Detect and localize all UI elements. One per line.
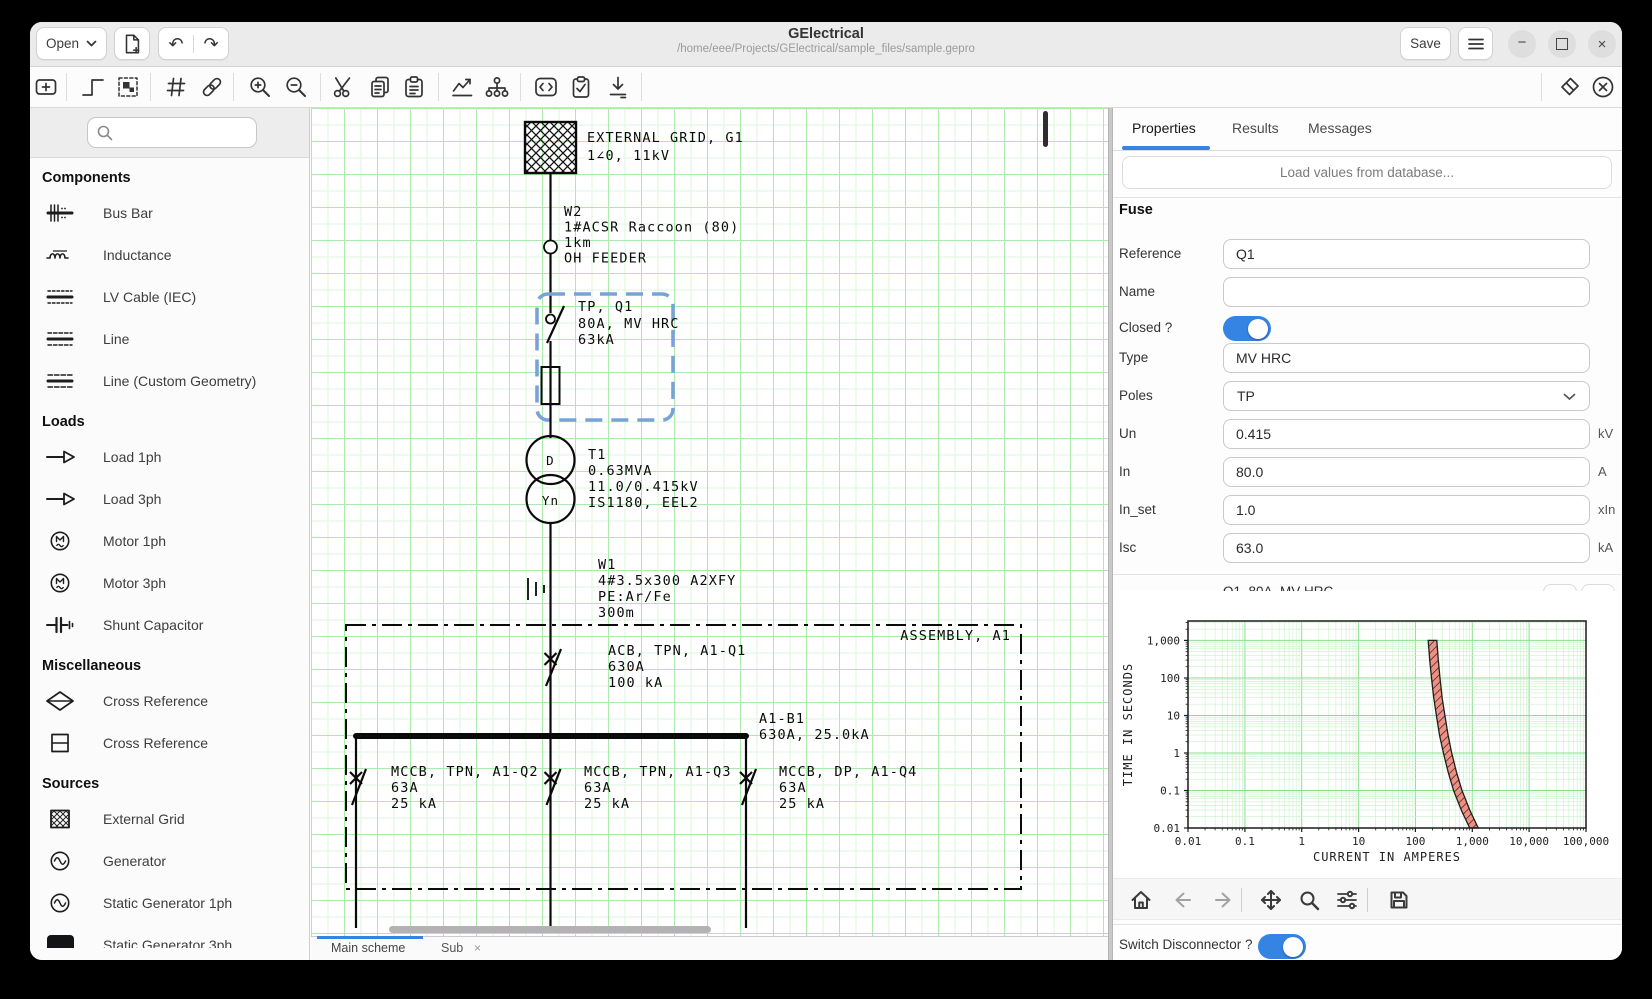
menu-button[interactable] — [1458, 27, 1493, 60]
floppy-save-icon — [1387, 888, 1411, 912]
maximize-button[interactable] — [1548, 30, 1576, 58]
svg-text:IS1180, EEL2: IS1180, EEL2 — [588, 495, 699, 511]
svg-text:100: 100 — [1405, 835, 1425, 848]
tab-results[interactable]: Results — [1232, 120, 1279, 136]
in-set-input[interactable] — [1223, 495, 1590, 525]
sidebar-item-static-generator-3ph[interactable]: Static Generator 3ph — [30, 924, 309, 948]
draw-wire-icon — [80, 74, 106, 100]
paste-button[interactable] — [401, 74, 427, 100]
w2-label: W2 — [564, 204, 582, 220]
new-document-icon — [121, 32, 143, 56]
link-icon — [199, 74, 225, 100]
external-grid-symbol[interactable] — [525, 122, 576, 173]
sidebar-item-motor-3ph[interactable]: Motor 3ph — [30, 562, 309, 604]
section-miscellaneous: Miscellaneous — [30, 646, 309, 680]
mccb-q2-label: MCCB, TPN, A1-Q2 — [391, 764, 539, 780]
component-list: Components Bus Bar Inductance LV Cable (… — [30, 158, 309, 948]
svg-text:0.1: 0.1 — [1160, 785, 1180, 798]
add-component-icon — [33, 74, 59, 100]
svg-text:1,000: 1,000 — [1456, 835, 1489, 848]
schematic-drawing[interactable]: EXTERNAL GRID, G1 1∠0, 11kV W2 1#ACSR Ra… — [311, 108, 1108, 936]
svg-text:25 kA: 25 kA — [779, 796, 825, 812]
chart-zoom-button[interactable] — [1297, 888, 1321, 912]
load-arrow-icon — [45, 446, 77, 468]
sidebar-item-label: Static Generator 3ph — [103, 937, 232, 948]
import-values-button[interactable] — [605, 74, 631, 100]
mccb-q4-label: MCCB, DP, A1-Q4 — [779, 764, 917, 780]
svg-text:OH FEEDER: OH FEEDER — [564, 251, 647, 267]
titlebar: Open ↶ ↷ GElectrical /home/eee/Projects/… — [30, 22, 1622, 67]
motor-icon — [45, 530, 77, 552]
svg-text:63A: 63A — [779, 780, 807, 796]
inductance-icon — [45, 244, 77, 266]
edit-code-button[interactable] — [533, 74, 559, 100]
sidebar-item-label: Static Generator 1ph — [103, 895, 232, 911]
paste-icon — [401, 74, 427, 100]
home-icon — [1129, 888, 1153, 912]
chevron-down-icon — [1563, 393, 1576, 401]
new-document-button[interactable] — [114, 27, 150, 60]
chart-back-button[interactable] — [1171, 888, 1195, 912]
svg-text:1∠0, 11kV: 1∠0, 11kV — [587, 148, 670, 164]
clipboard-check-icon — [568, 74, 594, 100]
chart-save-button[interactable] — [1387, 888, 1411, 912]
line-custom-icon — [45, 370, 77, 392]
svg-text:0.63MVA: 0.63MVA — [588, 463, 653, 479]
line-icon — [45, 328, 77, 350]
download-icon — [605, 74, 631, 100]
minimize-icon: − — [1518, 34, 1527, 51]
link-elements-button[interactable] — [199, 74, 225, 100]
name-input[interactable] — [1223, 277, 1590, 307]
sidebar-item-cross-reference-1[interactable]: Cross Reference — [30, 680, 309, 722]
section-loads: Loads — [30, 402, 309, 436]
close-button[interactable]: × — [1588, 30, 1616, 58]
component-sidebar: Components Bus Bar Inductance LV Cable (… — [30, 108, 310, 960]
eraser-button[interactable] — [1555, 74, 1581, 100]
eraser-icon — [1555, 74, 1581, 100]
acb-label: ACB, TPN, A1-Q1 — [608, 643, 746, 659]
insert-assembly-button[interactable] — [115, 74, 141, 100]
sidebar-item-label: External Grid — [103, 811, 185, 827]
search-icon — [96, 124, 114, 142]
window-title-block: GElectrical /home/eee/Projects/GElectric… — [526, 26, 1126, 55]
svg-text:10: 10 — [1167, 710, 1180, 723]
vertical-scrollbar-thumb[interactable] — [1043, 111, 1048, 147]
app-title: GElectrical — [526, 26, 1126, 42]
poles-selected-value: TP — [1237, 388, 1255, 404]
svg-text:TIME IN SECONDS: TIME IN SECONDS — [1121, 663, 1135, 786]
sidebar-item-label: Cross Reference — [103, 735, 208, 751]
field-label-un: Un — [1119, 426, 1136, 441]
cable-icon — [45, 286, 77, 308]
add-component-button[interactable] — [33, 74, 59, 100]
sidebar-item-label: Bus Bar — [103, 205, 153, 221]
sidebar-item-label: Shunt Capacitor — [103, 617, 203, 633]
sidebar-item-load-3ph[interactable]: Load 3ph — [30, 478, 309, 520]
network-model-button[interactable] — [484, 74, 510, 100]
sidebar-item-external-grid[interactable]: External Grid — [30, 798, 309, 840]
chart-pan-button[interactable] — [1259, 888, 1283, 912]
sidebar-item-line[interactable]: Line — [30, 318, 309, 360]
sidebar-item-line-custom[interactable]: Line (Custom Geometry) — [30, 360, 309, 402]
static-generator-icon — [45, 934, 77, 948]
sidebar-item-cross-reference-2[interactable]: Cross Reference — [30, 722, 309, 764]
tab-sub[interactable]: Sub — [441, 941, 463, 955]
switch-disconnector-toggle[interactable] — [1258, 934, 1306, 959]
circle-x-icon — [1590, 74, 1616, 100]
hash-icon — [163, 74, 189, 100]
element-type-heading: Fuse — [1119, 202, 1153, 218]
svg-text:300m: 300m — [598, 605, 635, 621]
generator-icon — [45, 892, 77, 914]
horizontal-scrollbar-thumb[interactable] — [389, 926, 711, 933]
toolbar — [30, 67, 1622, 108]
chart-toolbar — [1113, 878, 1622, 920]
move-icon — [1259, 888, 1283, 912]
un-unit: kV — [1598, 426, 1613, 441]
svg-text:1#ACSR Raccoon (80): 1#ACSR Raccoon (80) — [564, 220, 739, 236]
tab-messages[interactable]: Messages — [1308, 120, 1372, 136]
sidebar-item-label: Load 3ph — [103, 491, 161, 507]
active-sheet-indicator — [317, 936, 423, 939]
arrow-right-icon — [1211, 888, 1235, 912]
vector-group-lv: Yn — [542, 493, 559, 508]
svg-text:1km: 1km — [564, 235, 592, 251]
redo-button[interactable]: ↷ — [194, 35, 228, 53]
external-grid-label: EXTERNAL GRID, G1 — [587, 130, 744, 146]
svg-text:CURRENT IN AMPERES: CURRENT IN AMPERES — [1313, 850, 1461, 864]
switch-disconnector-label: Switch Disconnector ? — [1119, 937, 1253, 952]
poles-select[interactable]: TP — [1223, 381, 1590, 411]
field-label-closed: Closed ? — [1119, 320, 1172, 335]
type-input[interactable] — [1223, 343, 1590, 373]
svg-text:630A: 630A — [608, 659, 645, 675]
svg-text:80A, MV HRC: 80A, MV HRC — [578, 316, 680, 332]
zoom-in-icon — [247, 74, 273, 100]
line-chart-icon — [449, 74, 475, 100]
assembly-label: ASSEMBLY, A1 — [900, 628, 1011, 644]
save-button-label: Save — [1410, 36, 1441, 51]
section-sources: Sources — [30, 764, 309, 798]
svg-text:1,000: 1,000 — [1147, 634, 1180, 647]
reference-input[interactable] — [1223, 239, 1590, 269]
in-input[interactable] — [1223, 457, 1590, 487]
un-input[interactable] — [1223, 419, 1590, 449]
cross-reference-diamond-icon — [45, 690, 77, 712]
sidebar-item-label: Generator — [103, 853, 166, 869]
sidebar-item-bus-bar[interactable]: Bus Bar — [30, 192, 309, 234]
close-icon: × — [1598, 36, 1607, 53]
w1-label: W1 — [598, 557, 616, 573]
maximize-icon — [1556, 38, 1568, 50]
open-button-label: Open — [46, 36, 79, 51]
zoom-in-button[interactable] — [247, 74, 273, 100]
field-label-in: In — [1119, 464, 1130, 479]
transformer-label: T1 — [588, 447, 606, 463]
cut-icon — [330, 74, 356, 100]
svg-text:11.0/0.415kV: 11.0/0.415kV — [588, 479, 699, 495]
sidebar-item-generator[interactable]: Generator — [30, 840, 309, 882]
sidebar-item-label: Line — [103, 331, 129, 347]
file-path: /home/eee/Projects/GElectrical/sample_fi… — [526, 43, 1126, 55]
chart-settings-button[interactable] — [1335, 888, 1359, 912]
svg-text:0.01: 0.01 — [1175, 835, 1202, 848]
sidebar-item-static-generator-1ph[interactable]: Static Generator 1ph — [30, 882, 309, 924]
load-from-database-button[interactable]: Load values from database... — [1122, 156, 1612, 189]
code-icon — [533, 74, 559, 100]
magnifier-icon — [1297, 888, 1321, 912]
svg-text:63A: 63A — [391, 780, 419, 796]
properties-panel: Properties Results Messages Load values … — [1113, 108, 1622, 960]
load-arrow-icon — [45, 488, 77, 510]
arrow-left-icon — [1171, 888, 1195, 912]
field-label-name: Name — [1119, 284, 1155, 299]
tab-sub-close-icon[interactable]: × — [474, 941, 481, 955]
zoom-out-icon — [283, 74, 309, 100]
hamburger-menu-icon — [1468, 38, 1484, 50]
fuse-switch-node[interactable] — [546, 315, 555, 324]
sheet-tabbar: Main scheme Sub × — [311, 936, 1108, 960]
panel-tabs: Properties Results Messages — [1113, 108, 1622, 151]
svg-text:10: 10 — [1352, 835, 1365, 848]
save-button[interactable]: Save — [1400, 27, 1451, 60]
chevron-down-icon — [86, 40, 97, 47]
insert-assembly-icon — [115, 74, 141, 100]
run-analysis-button[interactable] — [449, 74, 475, 100]
svg-text:100,000: 100,000 — [1563, 835, 1609, 848]
active-tab-indicator — [1122, 146, 1210, 150]
search-box[interactable] — [87, 117, 257, 148]
vector-group-hv: D — [546, 453, 555, 468]
section-components: Components — [30, 158, 309, 192]
svg-text:100 kA: 100 kA — [608, 675, 663, 691]
zoom-out-button[interactable] — [283, 74, 309, 100]
sidebar-item-label: Load 1ph — [103, 449, 161, 465]
svg-text:25 kA: 25 kA — [584, 796, 630, 812]
chart-home-button[interactable] — [1129, 888, 1153, 912]
app-window: Open ↶ ↷ GElectrical /home/eee/Projects/… — [30, 22, 1622, 960]
w2-node[interactable] — [544, 241, 557, 254]
in-set-unit: xIn — [1598, 502, 1615, 517]
svg-text:0.01: 0.01 — [1154, 822, 1181, 835]
isc-input[interactable] — [1223, 533, 1590, 563]
redo-icon: ↷ — [203, 34, 218, 54]
closed-toggle[interactable] — [1223, 316, 1271, 341]
element-reference-button[interactable] — [163, 74, 189, 100]
in-unit: A — [1598, 464, 1607, 479]
svg-text:63A: 63A — [584, 780, 612, 796]
svg-text:10,000: 10,000 — [1509, 835, 1549, 848]
shunt-capacitor-icon — [45, 614, 77, 636]
assembly-boundary[interactable] — [346, 625, 1021, 889]
open-button[interactable]: Open — [36, 27, 107, 60]
sidebar-item-inductance[interactable]: Inductance — [30, 234, 309, 276]
svg-text:0.1: 0.1 — [1235, 835, 1255, 848]
field-label-isc: Isc — [1119, 540, 1136, 555]
sidebar-item-label: Inductance — [103, 247, 172, 263]
cross-reference-box-icon — [45, 732, 77, 754]
busbar-label: A1-B1 — [759, 711, 805, 727]
schematic-canvas[interactable]: EXTERNAL GRID, G1 1∠0, 11kV W2 1#ACSR Ra… — [311, 108, 1108, 936]
field-label-reference: Reference — [1119, 246, 1181, 261]
sidebar-item-motor-1ph[interactable]: Motor 1ph — [30, 520, 309, 562]
svg-text:25 kA: 25 kA — [391, 796, 437, 812]
copy-icon — [367, 74, 393, 100]
sidebar-item-lv-cable[interactable]: LV Cable (IEC) — [30, 276, 309, 318]
svg-text:1: 1 — [1298, 835, 1305, 848]
svg-text:1: 1 — [1173, 747, 1180, 760]
busbar-icon — [45, 202, 77, 224]
svg-text:4#3.5x300 A2XFY: 4#3.5x300 A2XFY — [598, 573, 736, 589]
tab-main-scheme[interactable]: Main scheme — [331, 941, 405, 955]
generator-icon — [45, 850, 77, 872]
draw-wire-button[interactable] — [80, 74, 106, 100]
acb-symbol[interactable] — [545, 649, 562, 686]
mccb-q3-label: MCCB, TPN, A1-Q3 — [584, 764, 732, 780]
undo-icon: ↶ — [168, 34, 183, 54]
sidebar-search-strip — [30, 108, 309, 158]
undo-button[interactable]: ↶ — [159, 35, 194, 53]
sidebar-item-label: Motor 1ph — [103, 533, 166, 549]
field-label-type: Type — [1119, 350, 1148, 365]
fuse-label: TP, Q1 — [578, 299, 633, 315]
isc-unit: kA — [1598, 540, 1613, 555]
svg-text:63kA: 63kA — [578, 332, 615, 348]
sidebar-item-label: Line (Custom Geometry) — [103, 373, 256, 389]
field-label-in-set: In_set — [1119, 502, 1156, 517]
search-input[interactable] — [118, 121, 252, 145]
cut-button[interactable] — [330, 74, 356, 100]
copy-button[interactable] — [367, 74, 393, 100]
svg-text:PE:Ar/Fe: PE:Ar/Fe — [598, 589, 672, 605]
sidebar-item-label: LV Cable (IEC) — [103, 289, 196, 305]
external-grid-icon — [45, 808, 77, 830]
tab-properties[interactable]: Properties — [1132, 120, 1196, 136]
undo-redo-group: ↶ ↷ — [158, 27, 229, 60]
cable-symbol[interactable] — [528, 578, 544, 600]
chart-forward-button[interactable] — [1211, 888, 1235, 912]
network-icon — [484, 74, 510, 100]
svg-text:630A, 25.0kA: 630A, 25.0kA — [759, 727, 870, 743]
sidebar-item-label: Cross Reference — [103, 693, 208, 709]
time-current-curve-chart[interactable]: 0.010.11101001,00010,000100,0000.010.111… — [1118, 591, 1618, 876]
sidebar-item-shunt-capacitor[interactable]: Shunt Capacitor — [30, 604, 309, 646]
sidebar-item-load-1ph[interactable]: Load 1ph — [30, 436, 309, 478]
delete-element-button[interactable] — [1590, 74, 1616, 100]
motor-icon — [45, 572, 77, 594]
svg-text:100: 100 — [1160, 672, 1180, 685]
minimize-button[interactable]: − — [1508, 30, 1536, 58]
sidebar-item-label: Motor 3ph — [103, 575, 166, 591]
field-label-poles: Poles — [1119, 388, 1153, 403]
sliders-icon — [1335, 888, 1359, 912]
rules-check-button[interactable] — [568, 74, 594, 100]
